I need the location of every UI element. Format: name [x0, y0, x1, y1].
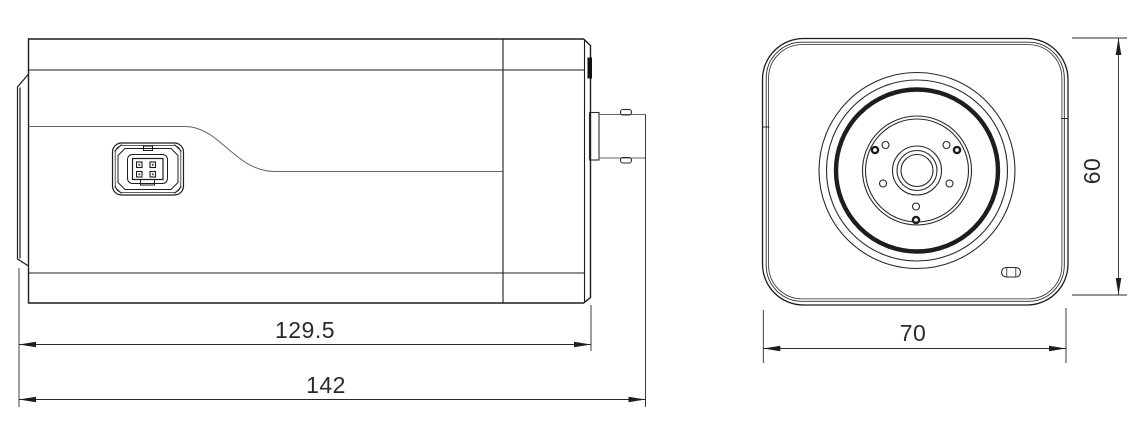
power-connector: [113, 143, 184, 195]
lens-opening-outer: [893, 146, 942, 195]
dimension-label-front-width: 70: [900, 320, 927, 346]
bnc-connector: [590, 110, 646, 164]
arrowhead-right: [629, 397, 646, 402]
camera-dimension-drawing: 129.5 142: [0, 0, 1145, 430]
bnc-barrel: [599, 115, 646, 159]
front-view: 70 60: [763, 38, 1128, 363]
rear-panel-tab: [588, 58, 593, 79]
screw-hole-rimmed: [954, 147, 960, 153]
dimension-label-body-length: 129.5: [275, 317, 335, 343]
lens-opening-inner: [901, 155, 933, 187]
housing-seam-curve: [29, 127, 503, 172]
screw-hole-rimmed: [872, 147, 878, 153]
dimension-label-overall-length: 142: [306, 372, 346, 398]
arrowhead-left: [19, 397, 36, 402]
bezel-parting-ticks: [763, 119, 1069, 128]
arrowhead-right: [574, 342, 591, 347]
extension-lines: [763, 38, 1127, 363]
arrowhead-right: [1049, 346, 1066, 351]
arrowhead-bottom: [1116, 278, 1122, 295]
front-view-dimensions: 70 60: [763, 38, 1127, 363]
indicator-slot: [1002, 268, 1021, 278]
front-bezel-outer: [763, 39, 1069, 306]
arrowhead-left: [19, 342, 36, 347]
screw-hole-rimmed: [913, 217, 919, 223]
connector-pins: [137, 162, 156, 177]
connector-bottom-key: [141, 180, 155, 186]
front-bezel-inner-line-1: [766, 42, 1064, 301]
lens-mount-flange: [18, 74, 29, 266]
arrowhead-left: [763, 346, 780, 351]
dimension-label-front-height: 60: [1079, 158, 1105, 185]
drawing-canvas: 129.5 142: [0, 0, 1145, 430]
lens-mount-thick-ring: [836, 90, 998, 252]
lens-mount-rings: [819, 73, 1015, 269]
connector-corner-ticks: [115, 145, 182, 194]
arrowhead-top: [1116, 38, 1122, 55]
side-view: 129.5 142: [18, 39, 646, 407]
